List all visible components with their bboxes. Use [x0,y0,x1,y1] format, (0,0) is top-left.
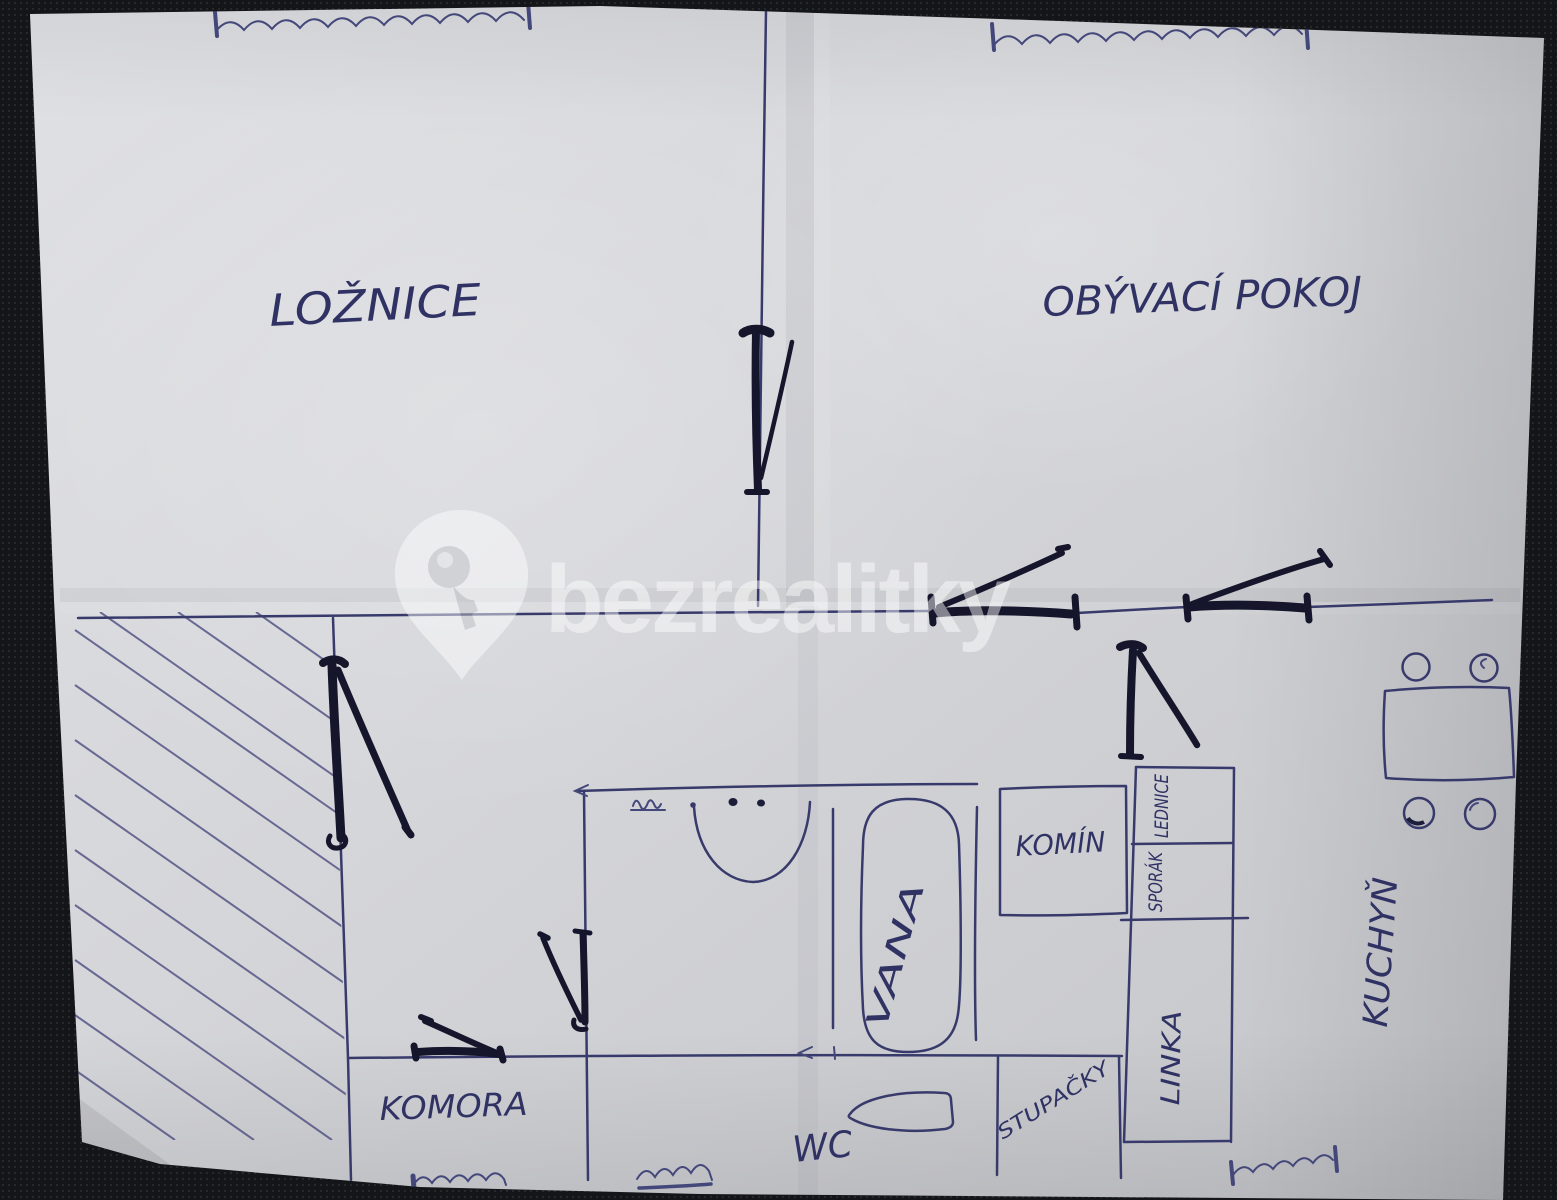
fridge-stove-divider [1132,843,1233,844]
label-kitchen-counter: LINKA [1156,1010,1188,1106]
floor-plan-sketch: bezrealitky LOŽNICE OBÝVACÍ POKOJ KOMORA… [0,0,1557,1200]
kitchen-counter-bottom [1124,1141,1229,1142]
label-stove: SPORÁK [1144,851,1167,912]
label-pantry: KOMORA [379,1085,528,1128]
tap-dot [729,798,738,806]
watermark-brand-text: bezrealitky [545,546,1011,653]
label-toilet: WC [791,1124,856,1171]
label-chimney: KOMÍN [1015,824,1107,863]
tap-dot [757,800,765,807]
label-fridge: LEDNICE [1151,774,1173,838]
wall-wc-right [997,1057,998,1175]
floor-plan-photo: bezrealitky LOŽNICE OBÝVACÍ POKOJ KOMORA… [0,0,1557,1200]
